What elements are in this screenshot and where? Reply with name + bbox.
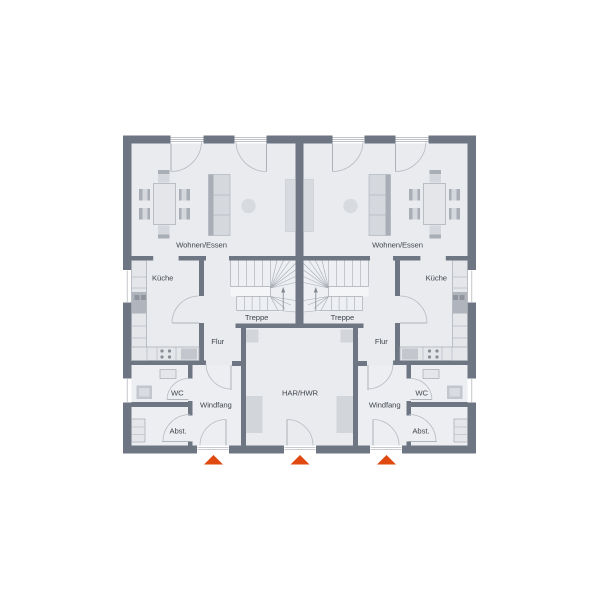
svg-text:Abst.: Abst.	[412, 427, 429, 436]
svg-text:HAR/HWR: HAR/HWR	[282, 389, 319, 398]
svg-text:Wohnen/Essen: Wohnen/Essen	[176, 240, 227, 249]
svg-text:Küche: Küche	[426, 273, 447, 282]
svg-text:Abst.: Abst.	[169, 427, 186, 436]
svg-text:Küche: Küche	[152, 273, 173, 282]
svg-text:Flur: Flur	[375, 337, 388, 346]
svg-text:Wohnen/Essen: Wohnen/Essen	[372, 240, 423, 249]
svg-text:WC: WC	[415, 388, 428, 397]
svg-text:Windfang: Windfang	[200, 401, 232, 410]
svg-text:WC: WC	[171, 388, 184, 397]
svg-text:Windfang: Windfang	[369, 401, 401, 410]
svg-text:Flur: Flur	[211, 337, 224, 346]
svg-text:Treppe: Treppe	[245, 313, 268, 322]
svg-text:Treppe: Treppe	[331, 313, 354, 322]
